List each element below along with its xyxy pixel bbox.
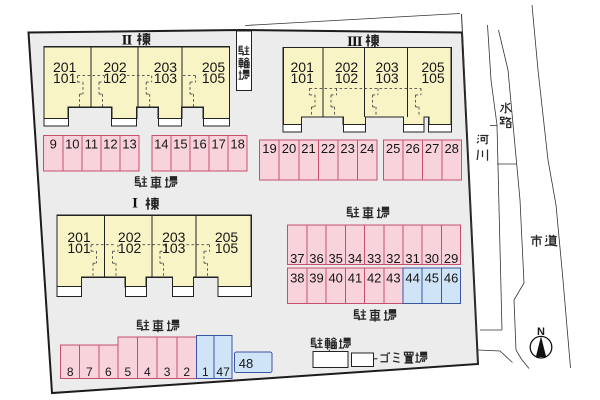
svg-text:205105: 205105 [421,59,445,86]
svg-text:40: 40 [328,270,342,285]
svg-text:38: 38 [290,270,304,285]
svg-text:13: 13 [122,136,136,151]
svg-text:3: 3 [164,365,171,379]
svg-text:18: 18 [230,136,244,151]
svg-text:202102: 202102 [335,59,359,86]
svg-text:35: 35 [328,251,342,266]
svg-text:N: N [537,326,545,338]
svg-text:12: 12 [103,136,117,151]
svg-text:203103: 203103 [154,59,178,86]
svg-text:201101: 201101 [291,59,315,86]
svg-text:42: 42 [367,270,381,285]
svg-text:II: II [122,33,133,49]
svg-text:21: 21 [301,141,315,156]
svg-text:37: 37 [290,251,304,266]
svg-text:17: 17 [211,136,225,151]
svg-text:47: 47 [216,365,230,379]
svg-text:23: 23 [340,141,354,156]
svg-text:39: 39 [309,270,323,285]
svg-text:203103: 203103 [162,229,186,256]
svg-text:20: 20 [282,141,296,156]
svg-text:III: III [347,34,363,50]
svg-text:32: 32 [386,251,400,266]
svg-text:8: 8 [67,365,74,379]
svg-text:45: 45 [425,270,439,285]
svg-text:202102: 202102 [103,59,127,86]
svg-text:19: 19 [262,141,276,156]
svg-text:33: 33 [367,251,381,266]
svg-text:205105: 205105 [202,59,226,86]
svg-text:28: 28 [444,141,458,156]
svg-text:25: 25 [386,141,400,156]
svg-text:26: 26 [405,141,419,156]
svg-text:15: 15 [173,136,187,151]
svg-text:201101: 201101 [67,229,91,256]
svg-text:29: 29 [444,251,458,266]
svg-text:46: 46 [444,270,458,285]
svg-text:1: 1 [202,365,209,379]
svg-text:43: 43 [386,270,400,285]
svg-text:14: 14 [154,136,168,151]
svg-text:201101: 201101 [53,59,77,86]
svg-text:16: 16 [192,136,206,151]
svg-text:9: 9 [50,136,57,151]
svg-text:24: 24 [360,141,374,156]
svg-text:7: 7 [86,365,93,379]
svg-text:202102: 202102 [118,229,142,256]
svg-text:10: 10 [65,136,79,151]
svg-text:I: I [132,196,138,212]
svg-text:41: 41 [348,270,362,285]
svg-text:31: 31 [405,251,419,266]
svg-text:5: 5 [124,365,131,379]
svg-text:4: 4 [144,365,151,379]
svg-text:48: 48 [239,356,253,371]
svg-text:27: 27 [425,141,439,156]
svg-text:203103: 203103 [375,59,399,86]
svg-text:30: 30 [425,251,439,266]
svg-text:44: 44 [405,270,419,285]
svg-text:22: 22 [321,141,335,156]
svg-text:2: 2 [183,365,190,379]
svg-text:11: 11 [85,136,99,151]
svg-text:36: 36 [309,251,323,266]
svg-text:6: 6 [105,365,112,379]
svg-text:34: 34 [348,251,362,266]
svg-text:205105: 205105 [215,229,239,256]
